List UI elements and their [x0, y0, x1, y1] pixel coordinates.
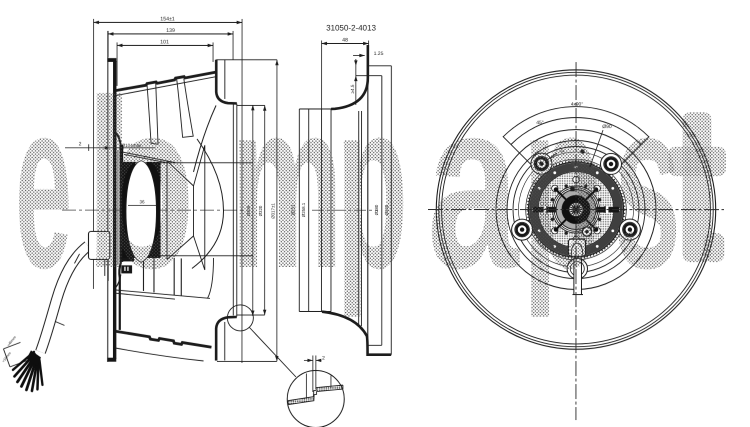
svg-text:154±1: 154±1	[160, 16, 175, 22]
svg-text:s: s	[614, 50, 681, 318]
svg-text:2: 2	[322, 355, 325, 361]
svg-text:e: e	[15, 50, 72, 318]
svg-text:a: a	[427, 50, 520, 318]
svg-text:2: 2	[79, 141, 82, 147]
svg-text:p: p	[336, 50, 408, 318]
svg-text:139: 139	[166, 28, 175, 34]
svg-text:101: 101	[160, 39, 169, 45]
svg-text:Ø90: Ø90	[602, 124, 612, 130]
svg-text:m: m	[231, 50, 343, 318]
svg-text:31050-2-4013: 31050-2-4013	[326, 23, 376, 32]
svg-text:p: p	[522, 50, 602, 318]
svg-text:b: b	[84, 50, 196, 318]
svg-text:48: 48	[342, 37, 348, 43]
